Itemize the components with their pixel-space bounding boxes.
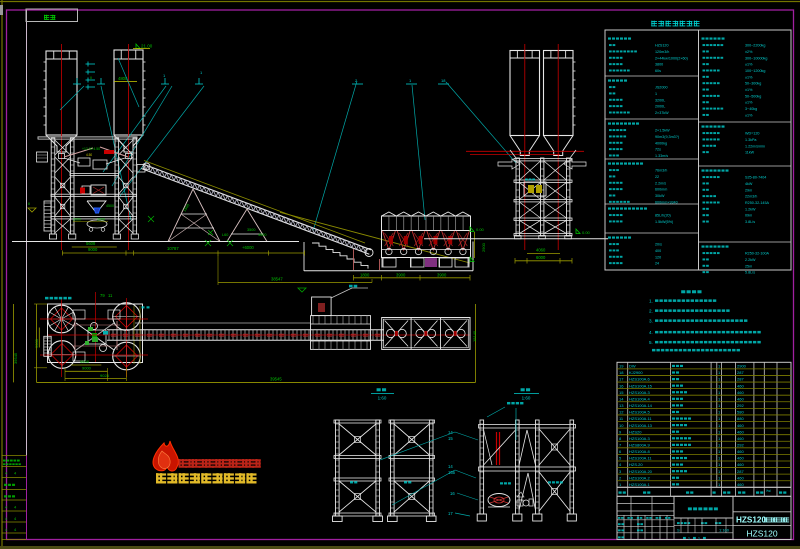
svg-text:21.00: 21.00 (141, 44, 153, 49)
svg-text:HZS120: HZS120 (736, 516, 766, 525)
svg-text:90m3(9,3m3?): 90m3(9,3m3?) (655, 135, 679, 139)
svg-text:HZS100A.3: HZS100A.3 (629, 436, 650, 441)
svg-text:460: 460 (737, 396, 744, 401)
svg-text:1.: 1. (649, 299, 653, 304)
svg-text:II: II (28, 201, 30, 206)
svg-text:25m: 25m (745, 264, 752, 268)
svg-text:5.8L/s: 5.8L/s (745, 271, 755, 275)
svg-text:11kW: 11kW (745, 151, 755, 155)
svg-text:10787: 10787 (167, 246, 179, 251)
svg-text:17: 17 (448, 511, 453, 516)
svg-text:5608: 5608 (80, 359, 90, 364)
svg-text:0.00: 0.00 (476, 227, 485, 232)
svg-text:76m3/h: 76m3/h (655, 169, 667, 173)
svg-text:KJ2900: KJ2900 (629, 370, 643, 375)
svg-text:287: 287 (737, 370, 744, 375)
svg-text:6000: 6000 (536, 255, 546, 260)
svg-text:460: 460 (737, 475, 744, 480)
svg-text:HZS20: HZS20 (629, 429, 642, 434)
svg-text:1.2kW: 1.2kW (745, 207, 756, 211)
svg-text:R250-32-100A: R250-32-100A (745, 252, 770, 256)
svg-text:11: 11 (108, 293, 113, 298)
svg-text:15: 15 (619, 390, 624, 395)
svg-text:9000: 9000 (82, 366, 92, 371)
svg-text:HZS100A.4: HZS100A.4 (629, 396, 650, 401)
svg-text:18: 18 (619, 370, 624, 375)
svg-text:3800: 3800 (655, 63, 663, 67)
svg-text:HZS800A.9: HZS800A.9 (629, 443, 650, 448)
svg-text:2900: 2900 (737, 364, 747, 369)
svg-text:14: 14 (619, 396, 624, 401)
svg-text:HZS100A.11: HZS100A.11 (629, 456, 652, 461)
svg-text:HZS100A.15: HZS100A.15 (629, 383, 653, 388)
svg-text:4060: 4060 (536, 248, 546, 253)
svg-text:HZS100A.3: HZS100A.3 (629, 390, 650, 395)
svg-text:3~40kg: 3~40kg (745, 107, 757, 111)
svg-text:5608: 5608 (86, 241, 96, 246)
svg-text:460: 460 (737, 456, 744, 461)
svg-text:100~1200kg: 100~1200kg (745, 69, 765, 73)
svg-text:2900: 2900 (481, 242, 486, 252)
svg-text:10: 10 (619, 423, 624, 428)
svg-text:R250-32-145A: R250-32-145A (745, 201, 770, 205)
svg-text:±2%: ±2% (745, 50, 753, 54)
svg-text:72s: 72s (655, 148, 661, 152)
svg-text:5.: 5. (649, 340, 653, 345)
svg-text:460: 460 (737, 429, 744, 434)
svg-text:79: 79 (100, 293, 105, 298)
svg-text:287: 287 (737, 377, 744, 382)
svg-text:50~500kg: 50~500kg (745, 94, 761, 98)
svg-text:1: 1 (655, 92, 657, 96)
svg-text:1.5kW(5%): 1.5kW(5%) (655, 220, 673, 224)
svg-text:4kW: 4kW (745, 182, 753, 186)
svg-text:2×37kW: 2×37kW (655, 111, 669, 115)
svg-text:HZS100A.13: HZS100A.13 (629, 423, 653, 428)
svg-text:600mm: 600mm (655, 188, 667, 192)
svg-text:400: 400 (655, 249, 661, 253)
svg-text:HZS100A.6: HZS100A.6 (629, 377, 650, 382)
svg-text:L60: L60 (222, 233, 228, 237)
svg-text:292: 292 (737, 403, 744, 408)
svg-text:460: 460 (737, 436, 744, 441)
svg-text:155: 155 (448, 470, 456, 475)
svg-text:S25-80-7404: S25-80-7404 (745, 176, 766, 180)
svg-text:HZS100A.5: HZS100A.5 (629, 410, 650, 415)
svg-text:±1%: ±1% (745, 113, 753, 117)
svg-text:14: 14 (448, 464, 453, 469)
svg-text:19: 19 (619, 364, 624, 369)
svg-text:1: 1 (698, 537, 700, 541)
svg-text:17: 17 (619, 377, 624, 382)
svg-text:22m3/h: 22m3/h (745, 195, 757, 199)
svg-text:+6000: +6000 (242, 245, 254, 250)
svg-text:HZS100A.1: HZS100A.1 (629, 482, 650, 487)
svg-text:30kW: 30kW (655, 194, 665, 198)
svg-text:2×1.5kW: 2×1.5kW (655, 129, 670, 133)
svg-text:15: 15 (448, 436, 453, 441)
svg-text:120: 120 (655, 255, 661, 259)
svg-text:1.33m/s: 1.33m/s (655, 154, 668, 158)
svg-text:39545: 39545 (13, 352, 18, 364)
svg-text:JS2000: JS2000 (655, 86, 668, 90)
svg-text:460: 460 (737, 383, 744, 388)
svg-text:4500: 4500 (258, 233, 266, 237)
svg-text:HZS100A.20: HZS100A.20 (629, 469, 653, 474)
svg-text:II: II (90, 76, 92, 80)
svg-text:460: 460 (737, 423, 744, 428)
svg-text:0.00: 0.00 (582, 230, 591, 235)
svg-text:20/s: 20/s (655, 243, 662, 247)
svg-text:HZS100A.8: HZS100A.8 (629, 449, 650, 454)
svg-text:120m3/h: 120m3/h (655, 50, 669, 54)
svg-text:HZS100A.11: HZS100A.11 (629, 416, 652, 421)
svg-text:3900: 3900 (396, 273, 406, 278)
svg-text:460: 460 (737, 462, 744, 467)
svg-text:2.: 2. (649, 309, 653, 314)
svg-text:DW: DW (629, 364, 636, 369)
svg-text:16: 16 (619, 383, 624, 388)
svg-text:1:60: 1:60 (378, 396, 387, 401)
svg-text:13: 13 (619, 403, 624, 408)
svg-text:300~10000kg: 300~10000kg (745, 56, 767, 60)
svg-text:HZS100A.14: HZS100A.14 (629, 403, 653, 408)
svg-text:HZS.20: HZS.20 (629, 462, 643, 467)
svg-text:19140: 19140 (472, 330, 477, 342)
svg-text:09m: 09m (745, 214, 752, 218)
svg-text:292: 292 (737, 443, 744, 448)
svg-text:1.22m/s/min: 1.22m/s/min (745, 144, 765, 148)
svg-text:±1%: ±1% (745, 75, 753, 79)
svg-text:16: 16 (450, 491, 455, 496)
svg-text:3.8L/s: 3.8L/s (745, 220, 755, 224)
svg-text:50~300kg: 50~300kg (745, 82, 761, 86)
svg-text:2.2m/s: 2.2m/s (655, 181, 666, 185)
svg-text:S: S (677, 528, 680, 533)
svg-text:287: 287 (737, 469, 744, 474)
svg-text:HZS120: HZS120 (655, 44, 669, 48)
svg-text:±1%: ±1% (745, 63, 753, 67)
svg-text:2.2kW: 2.2kW (745, 258, 756, 262)
svg-text:1:100: 1:100 (719, 528, 730, 533)
svg-text:4.50: 4.50 (86, 153, 92, 157)
svg-text:29m: 29m (745, 188, 752, 192)
svg-text:300~2200kg: 300~2200kg (745, 44, 765, 48)
svg-text:460: 460 (737, 390, 744, 395)
svg-text:460: 460 (737, 449, 744, 454)
svg-text:1800: 1800 (360, 273, 370, 278)
svg-text:1.3kPa: 1.3kPa (745, 138, 757, 142)
svg-text:±1%: ±1% (745, 88, 753, 92)
svg-text:4.: 4. (649, 330, 653, 335)
svg-text:(kg): (kg) (766, 488, 771, 492)
svg-text:4000kg: 4000kg (655, 141, 667, 145)
svg-text:3200L: 3200L (655, 98, 665, 102)
svg-text:85L/h(20): 85L/h(20) (655, 214, 671, 218)
svg-text:9024: 9024 (100, 373, 110, 378)
svg-text:WD=120: WD=120 (745, 132, 759, 136)
svg-text:880: 880 (737, 416, 744, 421)
svg-text:580: 580 (737, 410, 744, 415)
svg-text:±1%: ±1% (745, 101, 753, 105)
svg-text:HZS100A.2: HZS100A.2 (629, 475, 650, 480)
svg-text:22: 22 (655, 175, 659, 179)
svg-text:18: 18 (441, 78, 446, 83)
svg-text:24: 24 (655, 262, 659, 266)
svg-text:2000: 2000 (97, 218, 105, 222)
svg-text:12: 12 (619, 410, 624, 415)
svg-text:3900: 3900 (437, 273, 447, 278)
svg-text:2000L: 2000L (655, 105, 665, 109)
svg-text:1:60: 1:60 (522, 396, 531, 401)
svg-text:2×44kw/1000(2×60): 2×44kw/1000(2×60) (655, 56, 688, 60)
svg-text:460: 460 (737, 482, 744, 487)
svg-text:9000: 9000 (88, 247, 98, 252)
svg-text:60s: 60s (655, 69, 661, 73)
svg-text:4500: 4500 (106, 204, 114, 208)
svg-text:3500: 3500 (247, 228, 255, 232)
svg-text:2000: 2000 (73, 218, 81, 222)
svg-text:1: 1 (688, 537, 690, 541)
svg-text:+12.00 4.50: +12.00 4.50 (82, 147, 100, 151)
svg-text:38547: 38547 (271, 277, 283, 282)
svg-text:HZS120: HZS120 (746, 529, 777, 539)
svg-text:39545: 39545 (270, 377, 282, 382)
svg-text:3.: 3. (649, 319, 653, 324)
